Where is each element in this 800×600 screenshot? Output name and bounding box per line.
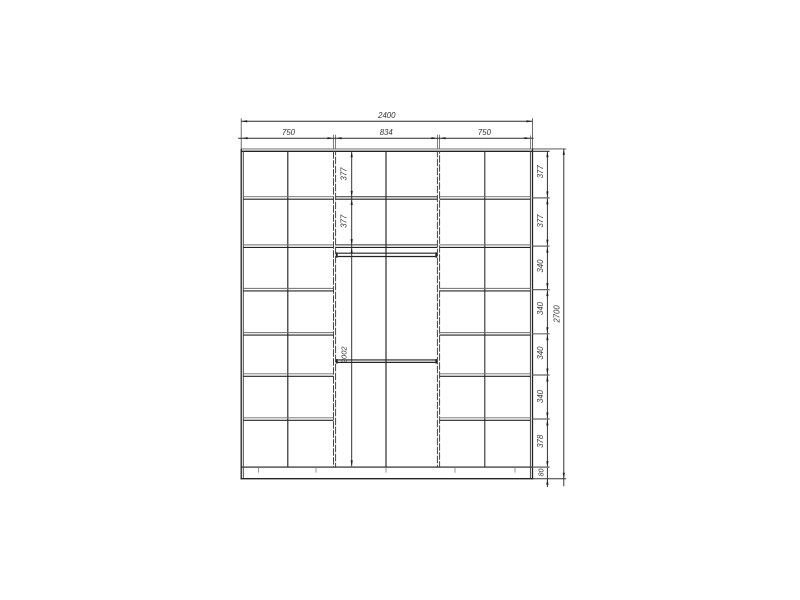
svg-text:340: 340	[536, 389, 545, 403]
svg-text:750: 750	[282, 128, 296, 137]
svg-text:377: 377	[340, 214, 349, 228]
svg-text:2002: 2002	[339, 346, 348, 365]
svg-text:377: 377	[536, 214, 545, 228]
svg-text:377: 377	[340, 167, 349, 181]
svg-text:2400: 2400	[377, 111, 396, 120]
svg-text:340: 340	[536, 346, 545, 360]
svg-text:340: 340	[536, 259, 545, 273]
svg-text:340: 340	[536, 301, 545, 315]
svg-text:834: 834	[380, 128, 394, 137]
svg-text:80: 80	[538, 469, 545, 477]
svg-text:2700: 2700	[552, 305, 561, 324]
svg-text:378: 378	[536, 434, 545, 448]
svg-text:377: 377	[536, 165, 545, 179]
svg-text:750: 750	[478, 128, 492, 137]
